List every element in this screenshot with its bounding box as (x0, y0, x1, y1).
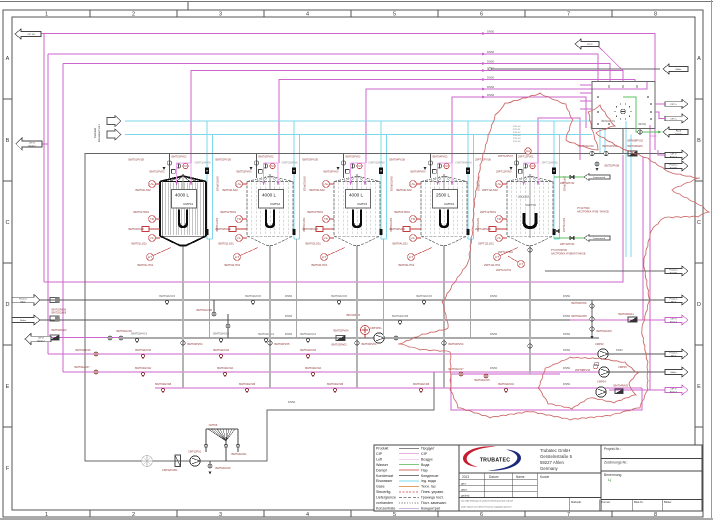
svg-text:ISMT01PV1B: ISMT01PV1B (128, 158, 144, 162)
svg-text:LIT: LIT (495, 255, 500, 259)
svg-text:Гликолевый: Гликолевый (593, 176, 606, 179)
svg-text:M: M (445, 164, 447, 168)
svg-text:ISMT03PA03: ISMT03PA03 (302, 227, 318, 231)
svg-text:Zeichnungs-Nr.:: Zeichnungs-Nr.: (604, 461, 628, 465)
svg-text:ISMT02WM08: ISMT02WM08 (282, 162, 299, 165)
svg-text:Пнев. управл.: Пнев. управл. (421, 490, 444, 494)
svg-text:ISMT02PV1B: ISMT02PV1B (303, 176, 306, 191)
svg-text:DN50: DN50 (563, 314, 571, 318)
svg-text:Das CAD Unterlage ist urheberr: Das CAD Unterlage ist urheberrechtlich g… (461, 500, 513, 503)
svg-text:vorhanden: vorhanden (376, 501, 393, 505)
svg-text:DN50: DN50 (487, 30, 495, 34)
svg-text:weder kopiert noch dritten Per: weder kopiert noch dritten Personen zugä… (461, 506, 512, 509)
svg-text:DN50: DN50 (490, 294, 498, 298)
svg-text:ISMT02HV10: ISMT02HV10 (213, 332, 230, 336)
svg-text:ISMT01PA03: ISMT01PA03 (128, 227, 144, 231)
svg-text:7: 7 (567, 12, 570, 18)
svg-text:M: M (271, 164, 273, 168)
svg-text:Пост. замешан.: Пост. замешан. (421, 501, 447, 505)
svg-text:/ед. вода: /ед. вода (421, 479, 436, 483)
svg-text:ISMT01LS01: ISMT01LS01 (131, 242, 147, 246)
svg-text:Bückl 2: Bückl 2 (28, 145, 36, 147)
svg-text:29PT12TR01: 29PT12TR01 (480, 210, 496, 214)
svg-text:ISMT02HV0A: ISMT02HV0A (217, 366, 234, 370)
svg-text:Техн. газ: Техн. газ (421, 485, 436, 489)
svg-text:ISMT02HV1B: ISMT02HV1B (327, 382, 344, 386)
svg-text:LS-: LS- (150, 236, 155, 240)
svg-text:Граница пост.: Граница пост. (421, 496, 444, 500)
svg-text:ISMT04PV04: ISMT04PV04 (448, 342, 464, 346)
svg-text:Wasser: Wasser (376, 463, 389, 467)
svg-text:LS-: LS- (237, 236, 242, 240)
svg-text:5: 5 (393, 512, 396, 518)
svg-text:LS+: LS+ (236, 182, 242, 186)
svg-text:Dampf: Dampf (376, 468, 387, 472)
svg-text:Tanker: Tanker (675, 132, 682, 135)
svg-text:CIP 2/: CIP 2/ (38, 337, 44, 339)
svg-text:Eiswasser: Eiswasser (376, 479, 393, 483)
svg-text:Bückl 2: Bückl 2 (670, 391, 678, 393)
svg-text:ISMT02HV1B: ISMT02HV1B (196, 308, 212, 312)
svg-text:DN50: DN50 (563, 294, 571, 298)
svg-text:ISMT04PV1B: ISMT04PV1B (389, 158, 405, 162)
svg-text:4000 L: 4000 L (175, 193, 189, 198)
svg-text:ISMT04HV08: ISMT04HV08 (571, 314, 587, 318)
svg-text:ISMT03PV03: ISMT03PV03 (323, 170, 339, 174)
svg-text:CMT02P01: CMT02P01 (188, 450, 202, 454)
svg-text:ISMT02PV07: ISMT02PV07 (602, 144, 618, 148)
svg-text:Bückl 2: Bückl 2 (670, 321, 678, 323)
svg-text:ISMT04HV01: ISMT04HV01 (231, 452, 247, 456)
svg-text:Benennung: Benennung (604, 473, 621, 477)
svg-text:Konzentrate: Konzentrate (376, 506, 395, 510)
svg-text:ISMT02LS02: ISMT02LS02 (222, 188, 238, 192)
svg-text:GA: GA (526, 149, 530, 153)
svg-text:29PT12PV07: 29PT12PV07 (498, 155, 513, 158)
svg-text:ISMT02PV05: ISMT02PV05 (274, 342, 290, 346)
svg-text:CIP 2+: CIP 2+ (670, 104, 677, 106)
svg-text:Name: Name (516, 475, 525, 479)
svg-text:ISMT02HV14: ISMT02HV14 (300, 332, 317, 336)
svg-text:LIT: LIT (235, 255, 240, 259)
svg-text:ISMT03LS02: ISMT03LS02 (309, 188, 325, 192)
svg-text:Liefergrenze: Liefergrenze (376, 496, 396, 500)
svg-text:ISMT02PA03: ISMT02PA03 (215, 227, 231, 231)
svg-text:ISMT02HV0A: ISMT02HV0A (305, 366, 322, 370)
svg-text:Prozess: Prozess (19, 297, 28, 300)
svg-text:ISMT02HV0A: ISMT02HV0A (135, 366, 152, 370)
svg-text:Prozess: Prozess (670, 297, 679, 300)
svg-text:ISMT04HV1B: ISMT04HV1B (392, 314, 409, 318)
svg-text:CIP 2/: CIP 2/ (670, 153, 676, 155)
svg-text:LIT: LIT (519, 262, 524, 266)
svg-text:ISMT04PV06: ISMT04PV06 (571, 301, 587, 305)
svg-text:ISMT02RA03: ISMT02RA03 (331, 343, 347, 347)
svg-text:CIP 2/: CIP 2/ (670, 388, 676, 390)
svg-text:4000 L: 4000 L (262, 193, 276, 198)
svg-text:ISMT02LIT01: ISMT02LIT01 (224, 263, 241, 267)
svg-text:DN50: DN50 (487, 85, 495, 89)
svg-text:Molke: Molke (676, 69, 683, 71)
svg-text:2: 2 (132, 512, 135, 518)
svg-text:Milch: Milch (671, 301, 677, 303)
svg-text:ISMT02HV1B: ISMT02HV1B (155, 382, 172, 386)
svg-text:Bückl 2: Bückl 2 (37, 340, 45, 342)
svg-text:ISMT04RA05: ISMT04RA05 (613, 385, 629, 388)
svg-text:ISMT04RA03: ISMT04RA03 (627, 144, 643, 148)
svg-text:DN40: DN40 (616, 348, 623, 352)
svg-text:29PT12LV01: 29PT12LV01 (563, 217, 566, 232)
svg-text:ISFN0BPV02: ISFN0BPV02 (627, 139, 643, 143)
svg-text:CIP 2-: CIP 2- (587, 44, 593, 46)
svg-text:DN50: DN50 (288, 400, 296, 404)
svg-text:3/12-02: 3/12-02 (513, 132, 521, 134)
svg-text:29PT12HV23: 29PT12HV23 (560, 243, 575, 246)
svg-text:ISMT03PV1B: ISMT03PV1B (390, 176, 393, 191)
svg-text:Гликолевый: Гликолевый (593, 237, 606, 240)
svg-text:8: 8 (654, 512, 657, 518)
svg-text:Bückl 2: Bückl 2 (670, 156, 678, 158)
svg-text:ISMT02HV13: ISMT02HV13 (131, 332, 148, 336)
svg-text:4: 4 (306, 12, 309, 18)
svg-text:ISMT02HV13: ISMT02HV13 (258, 332, 275, 336)
svg-text:CMP03: CMP03 (618, 365, 627, 369)
svg-text:ISMT02HV04: ISMT02HV04 (135, 348, 152, 352)
svg-text:3: 3 (219, 512, 222, 518)
svg-text:ISMT02PV04: ISMT02PV04 (333, 329, 349, 333)
svg-text:Пар: Пар (421, 468, 428, 472)
svg-text:Produkt: Produkt (376, 447, 388, 451)
svg-text:29PT12HV22: 29PT12HV22 (560, 182, 575, 185)
svg-text:gepr.: gepr. (461, 488, 468, 492)
svg-text:LIT: LIT (322, 255, 327, 259)
svg-text:E: E (6, 384, 10, 390)
svg-text:ISMT02PV0B: ISMT02PV0B (604, 165, 619, 168)
svg-text:ISMT03PV04: ISMT03PV04 (361, 342, 377, 346)
svg-text:ISMT02HV15: ISMT02HV15 (331, 294, 348, 298)
svg-text:ISMT02HV15: ISMT02HV15 (159, 294, 176, 298)
svg-text:3: 3 (219, 12, 222, 18)
svg-text:CMT02F.M01: CMT02F.M01 (162, 468, 178, 472)
svg-text:6: 6 (480, 512, 483, 518)
svg-text:A: A (6, 56, 10, 62)
svg-text:2: 2 (132, 12, 135, 18)
svg-text:Продукт: Продукт (421, 447, 435, 451)
svg-text:Steuerltg.: Steuerltg. (376, 490, 391, 494)
svg-text:DN50: DN50 (490, 366, 498, 370)
svg-text:DN50: DN50 (487, 60, 495, 64)
svg-text:6: 6 (480, 12, 483, 18)
svg-text:CIP: CIP (376, 452, 383, 456)
svg-text:Milch: Milch (671, 355, 677, 357)
svg-text:TRUBATEC: TRUBATEC (480, 458, 511, 464)
svg-text:ISMT04TR01: ISMT04TR01 (394, 210, 410, 214)
svg-text:geänd.: geänd. (461, 494, 470, 498)
svg-text:DN50: DN50 (285, 332, 293, 336)
svg-text:DN50: DN50 (285, 294, 293, 298)
svg-text:Blatt-Nr.: Blatt-Nr. (634, 500, 644, 504)
svg-text:4: 4 (306, 512, 309, 518)
svg-text:ISMT01WM08: ISMT01WM08 (195, 162, 212, 165)
svg-text:ISMT02HV15: ISMT02HV15 (245, 294, 262, 298)
svg-text:Gase: Gase (376, 485, 385, 489)
svg-text:ISMT03PV02: ISMT03PV02 (345, 155, 361, 159)
svg-text:D: D (6, 302, 10, 308)
svg-text:1: 1 (45, 12, 48, 18)
svg-text:29PT12PA03: 29PT12PA03 (475, 227, 491, 231)
svg-text:ISMT02HV15: ISMT02HV15 (474, 378, 490, 382)
svg-text:LS+: LS+ (496, 182, 502, 186)
svg-text:ISMT02HV18: ISMT02HV18 (116, 329, 132, 333)
svg-text:Produkt: Produkt (670, 271, 678, 274)
svg-text:Projekt-Nr.:: Projekt-Nr.: (604, 447, 621, 451)
svg-text:2500 L: 2500 L (436, 193, 450, 198)
svg-text:C: C (6, 220, 10, 226)
svg-text:CMT0P01: CMT0P01 (370, 326, 382, 330)
svg-text:M: M (184, 164, 186, 168)
svg-text:gez.: gez. (461, 482, 467, 486)
svg-text:ISMT02HV1B: ISMT02HV1B (413, 382, 430, 386)
svg-text:DN50: DN50 (487, 50, 495, 54)
svg-text:HACTPOЙKA YPOBHЯ TAHKOB: HACTPOЙKA YPOBHЯ TAHKOB (551, 253, 586, 256)
svg-text:DN50: DN50 (285, 314, 293, 318)
svg-text:CIP 2/: CIP 2/ (29, 142, 35, 144)
svg-text:ISMT02PV1B: ISMT02PV1B (215, 158, 231, 162)
svg-text:Вода: Вода (421, 463, 429, 467)
svg-text:3/12-04: 3/12-04 (513, 138, 521, 140)
svg-text:59227 Ahlen: 59227 Ahlen (540, 460, 565, 465)
svg-text:ISMT04PA03: ISMT04PA03 (389, 227, 405, 231)
svg-text:29PT12WM08: 29PT12WM08 (542, 162, 559, 165)
svg-text:ISMT01TR01: ISMT01TR01 (133, 210, 149, 214)
svg-text:Kunde: Kunde (540, 475, 549, 479)
svg-text:M: M (531, 164, 533, 168)
svg-text:CMT01: CMT01 (183, 202, 193, 206)
svg-text:29PT02: 29PT02 (525, 203, 536, 207)
svg-text:ISMT02RA02: ISMT02RA02 (51, 328, 67, 332)
svg-text:ISFN04V01: ISFN04V01 (601, 119, 615, 123)
svg-text:Molke: Molke (671, 372, 678, 374)
svg-text:CMP02: CMP02 (595, 342, 604, 346)
svg-text:CMP04: CMP04 (597, 380, 606, 384)
svg-text:ISMT02QA08: ISMT02QA08 (51, 312, 67, 315)
svg-text:(SFN0): (SFN0) (638, 123, 646, 126)
svg-text:DN50: DN50 (563, 382, 571, 386)
svg-text:LS-: LS- (324, 236, 329, 240)
svg-text:ISMT04WM08: ISMT04WM08 (456, 162, 473, 165)
svg-text:CMT04: CMT04 (444, 202, 454, 206)
svg-text:29PT12LS01: 29PT12LS01 (478, 242, 494, 246)
svg-text:CMT06: CMT06 (209, 423, 218, 427)
svg-text:ISMT03LIT01: ISMT03LIT01 (311, 263, 328, 267)
svg-text:Rahm: Rahm (20, 320, 26, 322)
svg-text:29PT0BPV10: 29PT0BPV10 (575, 369, 591, 372)
svg-text:29PT12PV03: 29PT12PV03 (496, 170, 512, 174)
svg-text:XXXXX: XXXXX (518, 195, 530, 199)
svg-text:C: C (697, 220, 701, 226)
svg-text:8: 8 (654, 12, 657, 18)
svg-text:HACTPOЙKA YPOB. TAHKOB: HACTPOЙKA YPOB. TAHKOB (577, 211, 609, 214)
svg-text:Trubatec GmbH: Trubatec GmbH (540, 448, 570, 453)
svg-text:Конденсат: Конденсат (421, 474, 439, 478)
svg-text:DN50: DN50 (487, 93, 495, 97)
svg-text:Road: Road (676, 130, 682, 132)
svg-text:Luft: Luft (376, 457, 382, 461)
svg-text:CIP 2H: CIP 2H (27, 34, 34, 36)
svg-text:DN40: DN40 (650, 135, 657, 138)
svg-text:LIT: LIT (148, 255, 153, 259)
svg-text:ISMT01LS02: ISMT01LS02 (135, 188, 151, 192)
svg-text:A: A (697, 56, 701, 62)
svg-text:Концентрат: Концентрат (421, 506, 441, 510)
svg-text:DN50: DN50 (563, 366, 571, 370)
svg-text:CIP 2+: CIP 2+ (670, 118, 677, 120)
svg-text:ISMT03LS01: ISMT03LS01 (305, 242, 321, 246)
svg-text:ISMT04LIT01: ISMT04LIT01 (398, 263, 415, 267)
svg-text:Blätter: Blätter (664, 500, 672, 504)
svg-text:ISMT03PV1B: ISMT03PV1B (302, 158, 318, 162)
svg-text:LS-: LS- (411, 236, 416, 240)
svg-text:Prozess: Prozess (670, 163, 679, 166)
svg-text:3/12-01: 3/12-01 (513, 129, 521, 131)
svg-text:ISMT02HV04: ISMT02HV04 (213, 348, 230, 352)
svg-text:Kondensat: Kondensat (376, 474, 393, 478)
svg-text:ISMT02PV04: ISMT02PV04 (187, 342, 203, 346)
svg-text:ISMT04HV09: ISMT04HV09 (596, 329, 612, 333)
svg-text:LIT: LIT (409, 255, 414, 259)
svg-text:3/12-00: 3/12-00 (513, 126, 521, 128)
svg-text:29PT12LIT01: 29PT12LIT01 (484, 263, 501, 267)
svg-text:3/12-03: 3/12-03 (513, 135, 521, 137)
svg-text:29PT12PV10: 29PT12PV10 (498, 251, 513, 254)
svg-text:B: B (697, 138, 701, 144)
svg-text:Prozess: Prozess (670, 268, 679, 271)
svg-text:E: E (697, 384, 701, 390)
svg-text:ISMT02HV20: ISMT02HV20 (215, 466, 231, 470)
svg-text:PT 02/T3/92: PT 02/T3/92 (577, 208, 590, 210)
svg-text:Eiswasser Vor-/: Eiswasser Vor-/ (97, 124, 101, 142)
svg-text:Germany: Germany (540, 466, 559, 471)
svg-text:Prozess: Prozess (670, 351, 679, 354)
svg-text:DN50: DN50 (487, 76, 495, 80)
svg-text:Produkt: Produkt (670, 166, 678, 169)
svg-text:ISMT04LS02: ISMT04LS02 (396, 188, 412, 192)
svg-text:ISMT01PV02: ISMT01PV02 (171, 155, 187, 159)
svg-text:CIP: CIP (421, 452, 428, 456)
svg-text:Datum: Datum (489, 475, 499, 479)
svg-text:ISMT02HV15: ISMT02HV15 (416, 294, 433, 298)
svg-text:B: B (6, 138, 10, 144)
svg-text:Milch: Milch (20, 301, 26, 303)
svg-text:DN50: DN50 (563, 332, 571, 336)
svg-text:ISMT03WM08: ISMT03WM08 (369, 162, 386, 165)
svg-text:Rücklauf: Rücklauf (93, 128, 97, 138)
svg-text:29PT12LS02: 29PT12LS02 (482, 188, 498, 192)
svg-text:CMT03: CMT03 (357, 202, 367, 206)
svg-text:7: 7 (567, 512, 570, 518)
svg-text:29PT12PV02: 29PT12PV02 (518, 155, 534, 159)
svg-text:ISMT04PV02: ISMT04PV02 (432, 155, 448, 159)
svg-text:ISMT02HV26: ISMT02HV26 (75, 348, 91, 352)
svg-text:2013: 2013 (462, 475, 469, 479)
svg-text:ISMT02HV1B: ISMT02HV1B (239, 382, 256, 386)
svg-text:Ц: Ц (608, 478, 611, 482)
svg-text:ISMT02PV03: ISMT02PV03 (236, 170, 252, 174)
svg-text:ISMT02HV27: ISMT02HV27 (74, 365, 90, 369)
svg-text:29PT12LIT01: 29PT12LIT01 (496, 269, 512, 272)
svg-text:LS+: LS+ (149, 182, 155, 186)
svg-text:ISMT01PV03: ISMT01PV03 (149, 170, 165, 174)
svg-text:5: 5 (393, 12, 396, 18)
svg-text:ISMT04LS01: ISMT04LS01 (392, 242, 408, 246)
svg-text:DN50: DN50 (563, 348, 571, 352)
svg-text:1: 1 (45, 512, 48, 518)
svg-text:Maßstab:: Maßstab: (571, 500, 582, 504)
svg-text:Gerstelnstraße 5: Gerstelnstraße 5 (540, 454, 573, 459)
svg-text:LS+: LS+ (410, 182, 416, 186)
svg-text:Воздух: Воздух (421, 457, 433, 461)
svg-text:ISMT02TR01: ISMT02TR01 (220, 210, 236, 214)
svg-text:ISMT02HV16: ISMT02HV16 (498, 382, 515, 386)
svg-text:PT KOHTPOЛb: PT KOHTPOЛb (551, 250, 568, 252)
svg-text:ISMT03TR01: ISMT03TR01 (307, 210, 323, 214)
svg-text:ISMT02PV02: ISMT02PV02 (258, 155, 274, 159)
svg-text:ISMT01PV1B: ISMT01PV1B (216, 176, 219, 191)
svg-text:LS-: LS- (497, 236, 502, 240)
svg-text:ISMT02LS01: ISMT02LS01 (218, 242, 234, 246)
svg-text:ISKF02FI01: ISKF02FI01 (346, 313, 361, 317)
svg-text:4000 L: 4000 L (349, 193, 363, 198)
svg-text:CMT02: CMT02 (270, 202, 280, 206)
svg-text:Format:: Format: (602, 500, 611, 504)
svg-text:D: D (697, 302, 701, 308)
svg-text:DN50: DN50 (490, 332, 498, 336)
svg-text:ISMT01LIT01: ISMT01LIT01 (137, 263, 154, 267)
svg-text:3/12-05: 3/12-05 (513, 141, 521, 143)
svg-text:ISMT02HV04: ISMT02HV04 (300, 348, 317, 352)
svg-text:CIP 2/: CIP 2/ (670, 318, 676, 320)
svg-text:ISMT04RA04: ISMT04RA04 (618, 312, 634, 316)
svg-text:ISMT04PV03: ISMT04PV03 (410, 170, 426, 174)
svg-text:LS+: LS+ (323, 182, 329, 186)
svg-text:M: M (358, 164, 360, 168)
